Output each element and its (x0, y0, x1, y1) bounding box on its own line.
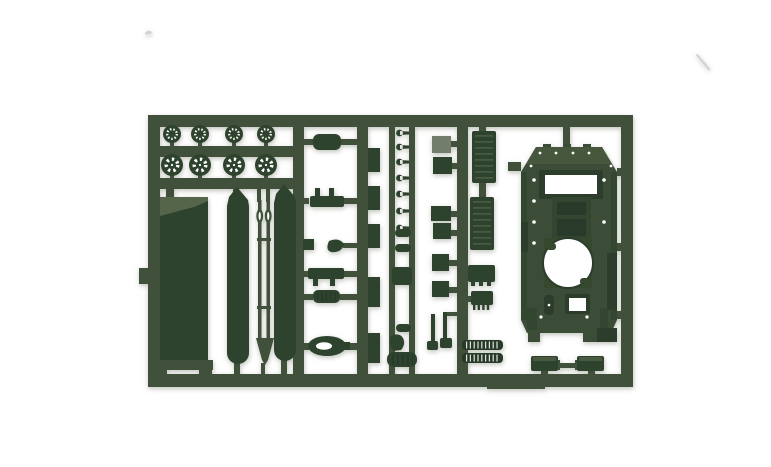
hull-corner-block (597, 328, 617, 342)
road-wheels-row-large (161, 154, 277, 176)
rivet-hole (530, 165, 533, 168)
road-wheel-small (257, 125, 275, 143)
antenna-pin (431, 314, 435, 341)
hull-rear-block (600, 308, 608, 328)
fuel-drum-part (313, 134, 341, 150)
rivet-hole (539, 152, 542, 155)
axle-hole (171, 164, 173, 166)
turret-ring (543, 238, 593, 288)
rivet-hole (555, 152, 558, 155)
pin-base (427, 341, 438, 350)
engine-body (468, 265, 495, 282)
road-wheel-large (189, 154, 211, 176)
ring-tab (546, 243, 556, 250)
hatch-small-part (303, 239, 314, 250)
middle-small-parts (303, 134, 350, 356)
ring-tab (580, 278, 590, 285)
hatch-part (432, 254, 449, 271)
hull-glacis-highlight (526, 147, 612, 164)
rod-tie (257, 306, 271, 309)
axle-hole (233, 164, 235, 166)
boot-part (390, 334, 404, 351)
runner-bar-parts (368, 148, 380, 363)
pill-part (395, 244, 411, 252)
rivet-hole (588, 152, 591, 155)
rod-tie (257, 238, 271, 241)
rivet-hole (532, 178, 536, 182)
rod-loop-hole (259, 212, 261, 220)
road-wheel-large (161, 154, 183, 176)
pump-part (392, 267, 412, 285)
comb-body (471, 291, 493, 305)
muffler-part (387, 352, 417, 367)
rivet-hole (585, 315, 588, 318)
road-wheel-large (223, 154, 245, 176)
hatch-part-gray (432, 136, 451, 153)
hook-part (327, 240, 344, 253)
suspension-pins (396, 130, 409, 232)
hull-floor-plate (160, 197, 208, 360)
rivet-hole (602, 178, 606, 182)
axle-hole (199, 164, 201, 166)
grille-body (470, 197, 494, 250)
stowage-bars (368, 148, 380, 363)
rivet-hole (532, 199, 536, 203)
wheel-disc (163, 125, 181, 143)
deck-recess (557, 202, 586, 215)
rivet-hole (532, 241, 536, 245)
grille-body (472, 131, 496, 183)
upper-hull-shell (521, 144, 617, 342)
dust-speck (145, 31, 152, 35)
pill-part (396, 324, 411, 332)
pin-base (440, 338, 452, 348)
hatch-parts-column (427, 136, 452, 350)
hatch-part (433, 157, 452, 174)
rivet-hole (548, 304, 551, 307)
knurled-cylinder-part (313, 290, 340, 303)
engine-foot (487, 282, 491, 286)
rivet-hole (532, 220, 536, 224)
road-wheel-small (163, 125, 181, 143)
opening-hole (545, 175, 597, 194)
road-wheel-large (255, 154, 277, 176)
driver-hatch-opening (539, 170, 603, 199)
track-end-section (462, 340, 503, 350)
axle-hole (265, 164, 267, 166)
radiator-grille (472, 131, 496, 183)
pill-part (395, 229, 411, 237)
side-skirt-right (274, 184, 296, 361)
tow-shackle-part (308, 336, 350, 356)
engine-block-part (468, 265, 495, 286)
shackle-lug (344, 342, 350, 350)
wheel-disc (191, 125, 209, 143)
box-lid-highlight (579, 357, 602, 361)
rear-hatch-opening (565, 294, 590, 314)
shackle-hole (316, 342, 332, 350)
rod-muzzle-tip (256, 338, 274, 365)
deck-recess (557, 219, 586, 236)
wheel-disc (257, 125, 275, 143)
side-skirt-left (227, 187, 249, 364)
opening-hole (569, 298, 586, 311)
bracket-prong (313, 279, 318, 286)
large-parts (160, 184, 296, 365)
wheel-disc (225, 125, 243, 143)
bracket-prong (315, 188, 320, 197)
gun-barrel-rods (256, 200, 274, 365)
hull-rear-block (527, 308, 537, 330)
road-wheel-small (225, 125, 243, 143)
photo-artifacts (145, 31, 710, 71)
bracket-part (310, 196, 344, 207)
engine-foot (479, 282, 483, 286)
rivet-hole (539, 315, 542, 318)
stowage-box-part (531, 356, 558, 371)
sprue-photo (0, 0, 771, 467)
bracket-prong (330, 279, 335, 286)
box-lid-highlight (533, 357, 556, 361)
stowage-box-part (577, 356, 604, 371)
road-wheel-small (191, 125, 209, 143)
rod-loop-hole (267, 212, 269, 220)
hatch-part (432, 281, 449, 297)
engine-foot (471, 282, 475, 286)
radiator-grille (470, 197, 494, 250)
bracket-prong (329, 188, 334, 197)
hatch-part (433, 223, 451, 239)
rivet-hole (610, 165, 613, 168)
road-wheels-row-small (163, 125, 275, 143)
antenna-pin (443, 312, 447, 338)
hull-left-block (521, 222, 528, 252)
rivet-hole (572, 152, 575, 155)
track-end-section (462, 353, 503, 363)
hatch-part (431, 206, 451, 221)
hull-side-strip (607, 253, 617, 310)
rivet-hole (602, 220, 606, 224)
product-photo (0, 0, 771, 467)
bracket-part (308, 268, 344, 279)
grille-parts-column (462, 131, 503, 363)
comb-grille-part (471, 291, 493, 307)
scratch-mark (696, 54, 710, 71)
